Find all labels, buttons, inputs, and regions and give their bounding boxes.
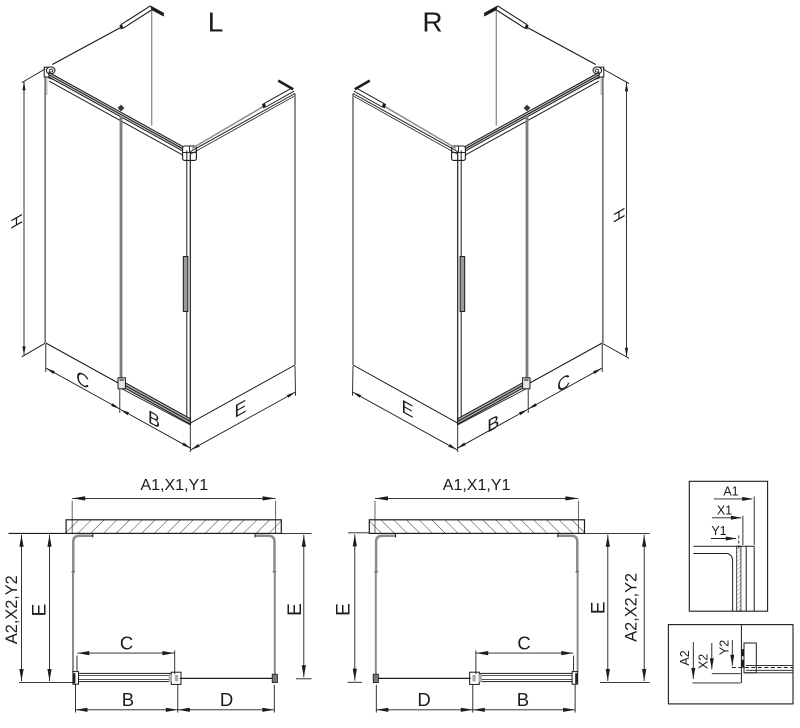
- svg-text:A2,X2,Y2: A2,X2,Y2: [622, 573, 640, 642]
- svg-text:B: B: [517, 689, 529, 710]
- svg-text:Y1: Y1: [711, 524, 726, 538]
- svg-text:R: R: [422, 7, 442, 38]
- svg-text:E: E: [334, 603, 355, 616]
- svg-text:A2,X2,Y2: A2,X2,Y2: [3, 575, 21, 644]
- svg-text:E: E: [588, 601, 609, 614]
- svg-text:A1: A1: [723, 485, 738, 499]
- svg-text:E: E: [29, 604, 50, 617]
- svg-text:A1,X1,Y1: A1,X1,Y1: [443, 477, 511, 494]
- svg-text:D: D: [220, 689, 233, 710]
- svg-text:X1: X1: [717, 504, 732, 518]
- svg-text:X2: X2: [697, 654, 711, 669]
- svg-text:A2: A2: [678, 650, 692, 665]
- svg-text:C: C: [517, 632, 530, 653]
- svg-text:B: B: [122, 689, 134, 710]
- svg-text:C: C: [120, 632, 133, 653]
- svg-text:Y2: Y2: [717, 640, 731, 655]
- svg-text:A1,X1,Y1: A1,X1,Y1: [140, 477, 208, 494]
- svg-text:D: D: [417, 689, 430, 710]
- svg-text:E: E: [285, 603, 306, 616]
- svg-text:L: L: [208, 7, 224, 38]
